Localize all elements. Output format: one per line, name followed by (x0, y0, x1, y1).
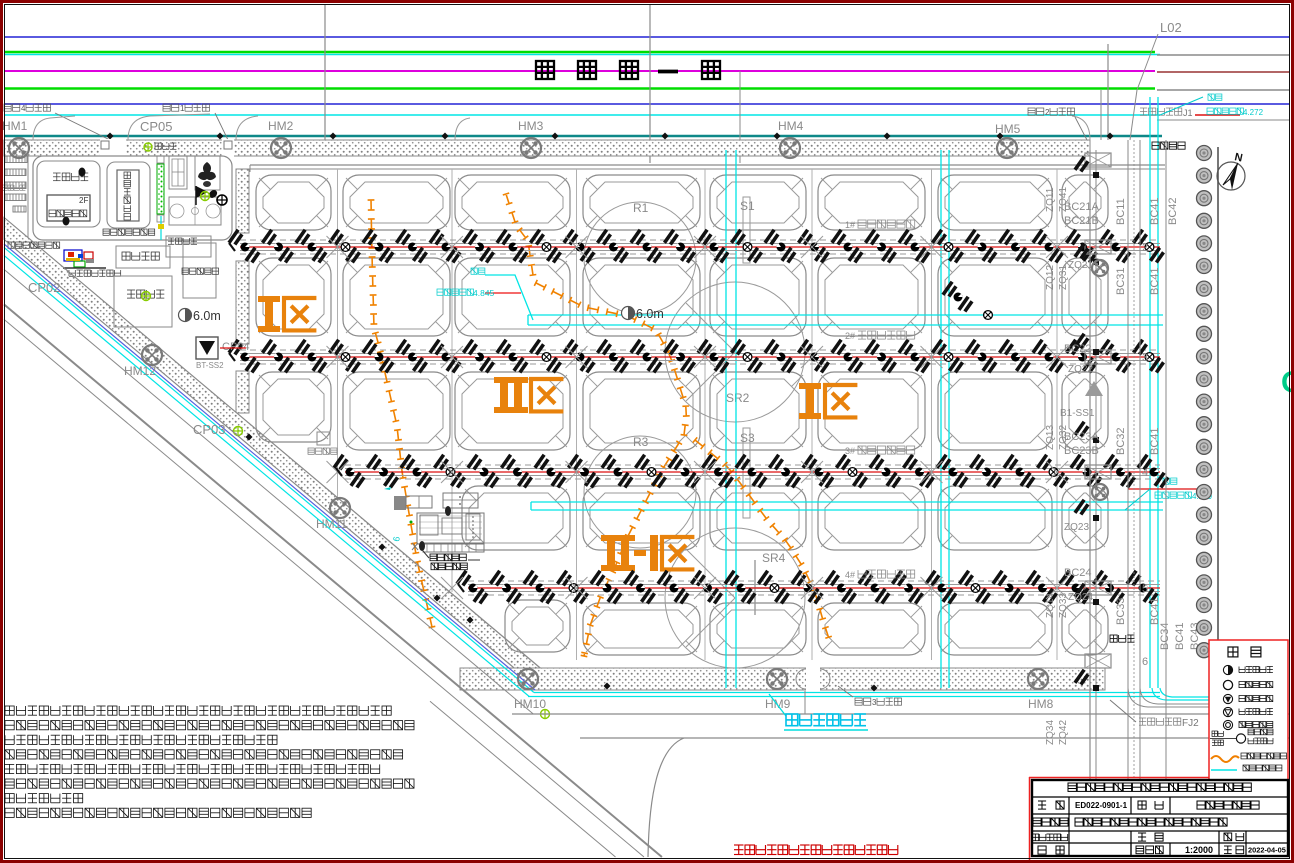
svg-text:4#: 4# (845, 570, 855, 580)
svg-text:2F: 2F (79, 196, 88, 205)
svg-text:BC23A: BC23A (1064, 431, 1100, 443)
svg-text:HM3: HM3 (518, 119, 544, 133)
svg-text:BC32: BC32 (1115, 427, 1127, 455)
svg-text:3: 3 (1142, 352, 1148, 364)
svg-text:ZQ22: ZQ22 (1068, 364, 1093, 375)
svg-text:BC22: BC22 (1064, 343, 1092, 355)
svg-text:ZQ12: ZQ12 (1045, 265, 1056, 290)
svg-text:L02: L02 (1160, 20, 1182, 35)
svg-text:ED022-0901-1: ED022-0901-1 (1075, 801, 1128, 810)
svg-text:ZQ21: ZQ21 (1068, 260, 1093, 271)
svg-text:SR2: SR2 (726, 391, 750, 405)
svg-text:2: 2 (1142, 242, 1148, 254)
svg-text:3#: 3# (845, 446, 855, 456)
svg-text:ZQ42: ZQ42 (1058, 720, 1069, 745)
svg-text:HM10: HM10 (514, 697, 546, 711)
svg-text:HM12: HM12 (124, 364, 156, 378)
svg-text:HM9: HM9 (765, 697, 791, 711)
svg-text:1#: 1# (845, 220, 855, 230)
svg-text:4.272: 4.272 (1243, 108, 1264, 117)
svg-text:BC31: BC31 (1115, 267, 1127, 295)
svg-text:BC41: BC41 (1149, 197, 1161, 225)
svg-text:6.0m: 6.0m (193, 309, 221, 323)
svg-text:BC23B: BC23B (1064, 445, 1099, 457)
svg-text:BC41: BC41 (1149, 597, 1161, 625)
svg-text:1: 1 (180, 104, 185, 113)
svg-text:BC21A: BC21A (1064, 201, 1100, 213)
svg-text:HM8: HM8 (1028, 697, 1054, 711)
svg-text:4.845: 4.845 (473, 288, 495, 298)
svg-text:4: 4 (1142, 467, 1148, 479)
svg-text:ZQ11: ZQ11 (1045, 187, 1056, 212)
svg-text:BC42: BC42 (1167, 197, 1179, 225)
svg-text:S3: S3 (740, 431, 755, 445)
svg-text:HM2: HM2 (268, 119, 294, 133)
svg-text:ZQ13: ZQ13 (1045, 425, 1056, 450)
svg-text:BC34: BC34 (1159, 622, 1171, 650)
svg-text:BC41: BC41 (1149, 267, 1161, 295)
svg-text:ZQ14: ZQ14 (1045, 593, 1056, 618)
svg-text:BC11: BC11 (1115, 198, 1127, 225)
svg-text:ZQ32: ZQ32 (1058, 425, 1069, 450)
svg-text:BT-SS2: BT-SS2 (196, 361, 224, 370)
svg-text:6: 6 (1142, 656, 1148, 668)
svg-text:ZQ23: ZQ23 (1064, 522, 1089, 533)
svg-text:B1-SS1: B1-SS1 (1060, 408, 1095, 419)
svg-text:4: 4 (21, 104, 26, 113)
svg-text:R1: R1 (633, 201, 649, 215)
svg-text:ZQ24: ZQ24 (1068, 592, 1093, 603)
svg-text:CP03: CP03 (193, 422, 226, 437)
svg-text:FJ2: FJ2 (1182, 718, 1199, 729)
svg-text:2: 2 (1045, 108, 1050, 117)
svg-text:S1: S1 (740, 199, 755, 213)
svg-text:ZQ41: ZQ41 (1058, 187, 1069, 212)
svg-text:CP02: CP02 (28, 280, 61, 295)
svg-text:HM1: HM1 (2, 119, 28, 133)
svg-text:CP04: CP04 (222, 341, 250, 353)
svg-text:BC33: BC33 (1115, 597, 1127, 625)
svg-text:ZQ34: ZQ34 (1045, 720, 1056, 745)
svg-text:6.0m: 6.0m (636, 307, 664, 321)
svg-text:BC41: BC41 (1149, 427, 1161, 455)
svg-text:2022-04-05: 2022-04-05 (1248, 846, 1286, 855)
svg-text:R3: R3 (633, 435, 649, 449)
svg-text:BC24: BC24 (1064, 567, 1092, 579)
svg-text:J1: J1 (1183, 108, 1193, 118)
svg-text:HM11: HM11 (316, 517, 347, 531)
svg-text:ZQ33: ZQ33 (1058, 593, 1069, 618)
svg-text:ZQ31: ZQ31 (1058, 265, 1069, 290)
svg-text:2#: 2# (845, 331, 855, 341)
svg-text:SR4: SR4 (762, 551, 786, 565)
svg-text:CP05: CP05 (140, 119, 173, 134)
svg-text:1:2000: 1:2000 (1185, 845, 1213, 855)
svg-text:BC21B: BC21B (1064, 215, 1099, 227)
svg-text:3: 3 (872, 698, 877, 707)
svg-text:5: 5 (1142, 583, 1148, 595)
svg-text:BC41: BC41 (1174, 622, 1186, 650)
svg-text:HM4: HM4 (778, 119, 804, 133)
